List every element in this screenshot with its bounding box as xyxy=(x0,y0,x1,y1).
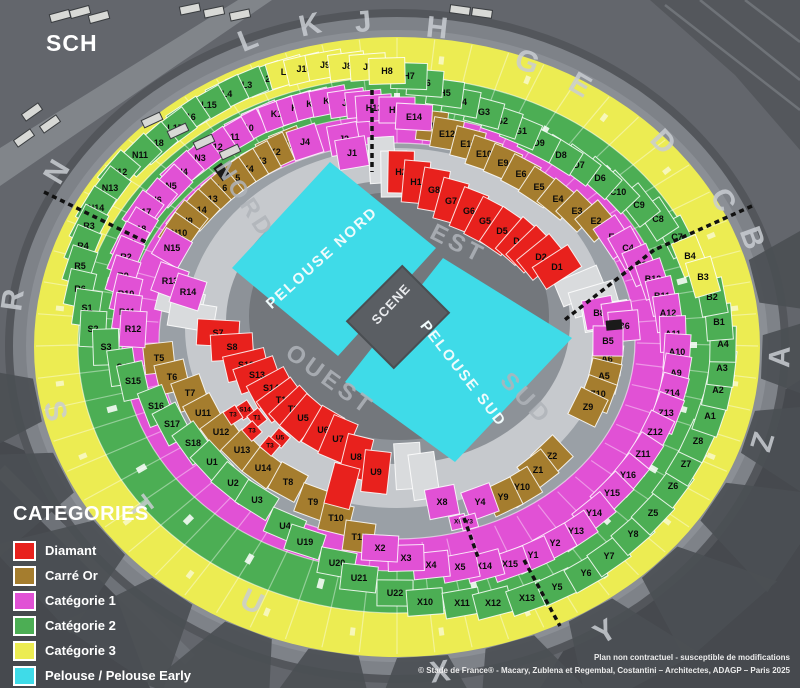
gate-letter-H: H xyxy=(424,10,449,45)
section-T1-label: T1 xyxy=(253,415,261,422)
section-S8-label: S8 xyxy=(226,342,237,352)
legend-item-3: Catégorie 1 xyxy=(13,588,243,613)
section-T3-label: T3 xyxy=(266,443,274,450)
stair-icon xyxy=(350,627,356,636)
gate-letter-A: A xyxy=(763,346,797,369)
section-Y15-label: Y15 xyxy=(604,488,620,498)
section-G8-label: G8 xyxy=(428,185,440,195)
section-C9-label: C9 xyxy=(633,200,645,210)
section-J1-label: J1 xyxy=(347,148,357,158)
section-H8-label: H8 xyxy=(381,66,393,76)
section-D8-label: D8 xyxy=(555,150,567,160)
legend-swatch xyxy=(13,591,36,611)
legend-item-1: Diamant xyxy=(13,538,243,563)
stadium-seating-plan: K1K2K3K4L5L6L13L14N9N10E13E12E11E10E9E6E… xyxy=(0,0,800,688)
section-Z11-label: Z11 xyxy=(635,449,650,459)
section-U9-label: U9 xyxy=(370,467,382,477)
section-D6-label: D6 xyxy=(594,173,606,183)
section-B5-label: B5 xyxy=(602,336,614,346)
section-Z9-label: Z9 xyxy=(583,402,594,412)
section-J4-label: J4 xyxy=(300,137,310,147)
stair-icon xyxy=(56,305,65,311)
section-U22-label: U22 xyxy=(387,588,404,598)
gate-letter-J: J xyxy=(353,5,373,39)
categories-legend: CATEGORIES DiamantCarré OrCatégorie 1Cat… xyxy=(13,503,243,688)
section-Y1-label: Y1 xyxy=(527,550,538,560)
section-T10-label: T10 xyxy=(328,513,344,523)
section-unlabeled[interactable] xyxy=(606,319,623,331)
section-H1-label: H1 xyxy=(410,177,422,187)
section-G3-label: G3 xyxy=(478,107,490,117)
legend-item-6: Pelouse / Pelouse Early xyxy=(13,663,243,688)
section-Y5-label: Y5 xyxy=(551,582,562,592)
legend-swatch xyxy=(13,666,36,686)
section-U5-label: U5 xyxy=(297,413,309,423)
stair-icon xyxy=(438,56,444,65)
section-X4-label: X4 xyxy=(425,560,436,570)
section-Y9-label: Y9 xyxy=(497,492,508,502)
legend-item-5: Catégorie 3 xyxy=(13,638,243,663)
section-U11-label: U11 xyxy=(195,408,211,418)
section-X10-label: X10 xyxy=(417,597,433,607)
footer-disclaimer: Plan non contractuel - susceptible de mo… xyxy=(418,651,790,664)
section-X11-label: X11 xyxy=(454,598,470,608)
legend-title: CATEGORIES xyxy=(13,503,243,526)
section-Y2-label: Y2 xyxy=(549,538,560,548)
section-X2-label: X2 xyxy=(374,543,385,553)
legend-item-label: Pelouse / Pelouse Early xyxy=(45,668,191,683)
plan-title: SCH xyxy=(46,30,98,57)
legend-item-2: Carré Or xyxy=(13,563,243,588)
section-S17-label: S17 xyxy=(164,419,180,429)
legend-swatch xyxy=(13,641,36,661)
section-Y6-label: Y6 xyxy=(580,568,591,578)
section-G5-label: G5 xyxy=(479,216,491,226)
section-R14-label: R14 xyxy=(180,287,197,297)
section-U3-label: U3 xyxy=(251,495,263,505)
section-U8-label: U8 xyxy=(350,452,362,462)
section-X5-label: X5 xyxy=(454,562,465,572)
section-X15-label: X15 xyxy=(502,559,518,569)
section-T6-label: T6 xyxy=(167,372,178,382)
section-X3-label: X3 xyxy=(400,553,411,563)
section-E12-label: E12 xyxy=(439,129,455,139)
section-A1-label: A1 xyxy=(704,411,716,421)
legend-item-label: Catégorie 3 xyxy=(45,643,116,658)
section-U19-label: U19 xyxy=(297,537,314,547)
section-G7-label: G7 xyxy=(445,196,457,206)
section-T5-label: T5 xyxy=(154,353,165,363)
section-U21-label: U21 xyxy=(351,573,368,583)
section-T9-label: T9 xyxy=(308,497,319,507)
legend-item-label: Catégorie 2 xyxy=(45,618,116,633)
section-N15-label: N15 xyxy=(164,243,181,253)
section-Z5-label: Z5 xyxy=(648,508,659,518)
section-D5-label: D5 xyxy=(496,226,508,236)
section-U5-label: U5 xyxy=(276,435,285,442)
section-X8-label: X8 xyxy=(436,497,447,507)
section-D1-label: D1 xyxy=(551,262,563,272)
section-U4-label: U4 xyxy=(279,521,291,531)
section-S14-label: S14 xyxy=(239,407,251,414)
section-U1-label: U1 xyxy=(206,457,218,467)
section-T7-label: T7 xyxy=(185,388,196,398)
section-U2-label: U2 xyxy=(227,478,239,488)
section-Y7-label: Y7 xyxy=(603,551,614,561)
section-U14-label: U14 xyxy=(255,463,272,473)
legend-swatch xyxy=(13,541,36,561)
section-T8-label: T8 xyxy=(283,477,294,487)
section-S18-label: S18 xyxy=(185,438,201,448)
legend-item-4: Catégorie 2 xyxy=(13,613,243,638)
section-Y4-label: Y4 xyxy=(474,497,485,507)
section-E14-label: E14 xyxy=(406,112,422,122)
section-X13-label: X13 xyxy=(519,593,535,603)
legend-item-label: Diamant xyxy=(45,543,96,558)
section-B1-label: B1 xyxy=(713,317,725,327)
section-Z1-label: Z1 xyxy=(533,465,544,475)
section-Z12-label: Z12 xyxy=(647,427,663,437)
legend-swatch xyxy=(13,566,36,586)
section-U13-label: U13 xyxy=(234,445,251,455)
legend-item-label: Carré Or xyxy=(45,568,98,583)
legend-items: DiamantCarré OrCatégorie 1Catégorie 2Cat… xyxy=(13,538,243,688)
section-Z6-label: Z6 xyxy=(668,481,679,491)
legend-item-label: Catégorie 1 xyxy=(45,593,116,608)
section-T3-label: T3 xyxy=(229,412,237,419)
section-E6-label: E6 xyxy=(515,169,526,179)
section-Z7-label: Z7 xyxy=(681,459,692,469)
section-E5-label: E5 xyxy=(533,182,544,192)
section-X12-label: X12 xyxy=(485,598,501,608)
section-B4-label: B4 xyxy=(684,251,696,261)
section-R12-label: R12 xyxy=(125,324,142,334)
footer-credits: © Stade de France® - Macary, Zublena et … xyxy=(418,664,790,677)
section-S15-label: S15 xyxy=(125,376,141,386)
section-B3-label: B3 xyxy=(697,272,709,282)
section-Z8-label: Z8 xyxy=(693,436,704,446)
section-A3-label: A3 xyxy=(716,363,728,373)
section-T3-label: T3 xyxy=(248,428,256,435)
section-E4-label: E4 xyxy=(552,194,563,204)
legend-swatch xyxy=(13,616,36,636)
section-U12-label: U12 xyxy=(213,427,230,437)
section-Y8-label: Y8 xyxy=(627,529,638,539)
copyright-footer: Plan non contractuel - susceptible de mo… xyxy=(418,651,790,677)
section-E9-label: E9 xyxy=(497,158,508,168)
section-N11-label: N11 xyxy=(132,150,148,160)
section-U7-label: U7 xyxy=(332,434,344,444)
